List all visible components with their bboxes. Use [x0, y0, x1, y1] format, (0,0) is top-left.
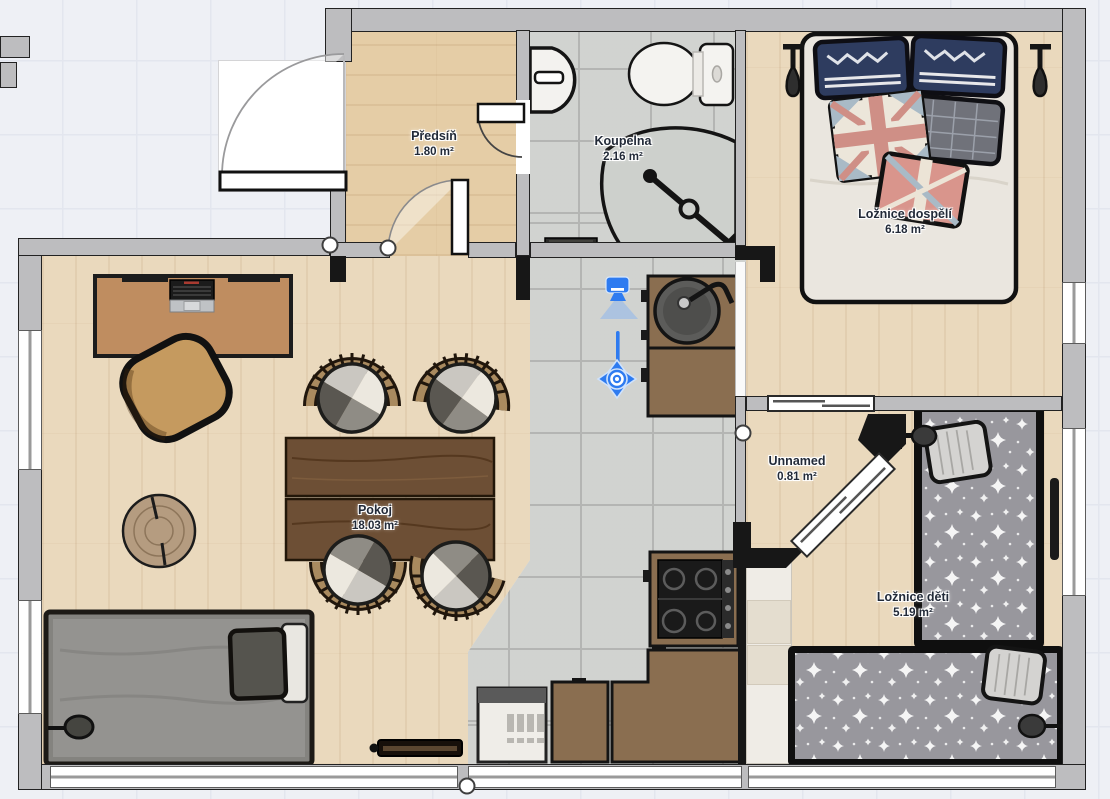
room-label-unnamed[interactable]: Unnamed 0.81 m² — [769, 454, 826, 484]
wall-node[interactable] — [322, 237, 339, 254]
room-area: 18.03 m² — [352, 519, 398, 533]
room-area: 0.81 m² — [769, 470, 826, 484]
room-area: 5.19 m² — [877, 606, 949, 620]
doors-overlay — [0, 0, 1110, 799]
hall-door[interactable] — [388, 180, 468, 254]
move-gizmo-icon[interactable] — [598, 360, 636, 398]
room-label-loznice-dospeli[interactable]: Ložnice dospělí 6.18 m² — [858, 207, 952, 237]
room-name: Unnamed — [769, 454, 826, 468]
room-name: Předsíň — [411, 129, 457, 143]
wall-node[interactable] — [459, 778, 476, 795]
wall-node[interactable] — [735, 425, 752, 442]
room-label-pokoj[interactable]: Pokoj 18.03 m² — [352, 503, 398, 533]
room-label-loznice-deti[interactable]: Ložnice děti 5.19 m² — [877, 590, 949, 620]
room-area: 1.80 m² — [411, 145, 457, 159]
room-label-koupelna[interactable]: Koupelna 2.16 m² — [595, 134, 652, 164]
room-label-predsin[interactable]: Předsíň 1.80 m² — [411, 129, 457, 159]
wall-node[interactable] — [380, 240, 397, 257]
room-name: Ložnice dospělí — [858, 207, 952, 221]
room-area: 6.18 m² — [858, 223, 952, 237]
sliding-door-top[interactable] — [768, 396, 874, 411]
room-name: Pokoj — [358, 503, 392, 517]
room-area: 2.16 m² — [595, 150, 652, 164]
room-name: Koupelna — [595, 134, 652, 148]
camera-viewpoint-icon[interactable] — [600, 277, 638, 319]
room-name: Ložnice děti — [877, 590, 949, 604]
bathroom-door[interactable] — [478, 104, 524, 157]
entrance-door[interactable] — [220, 54, 346, 190]
floorplan-canvas[interactable]: Předsíň 1.80 m² Koupelna 2.16 m² Ložnice… — [0, 0, 1110, 799]
